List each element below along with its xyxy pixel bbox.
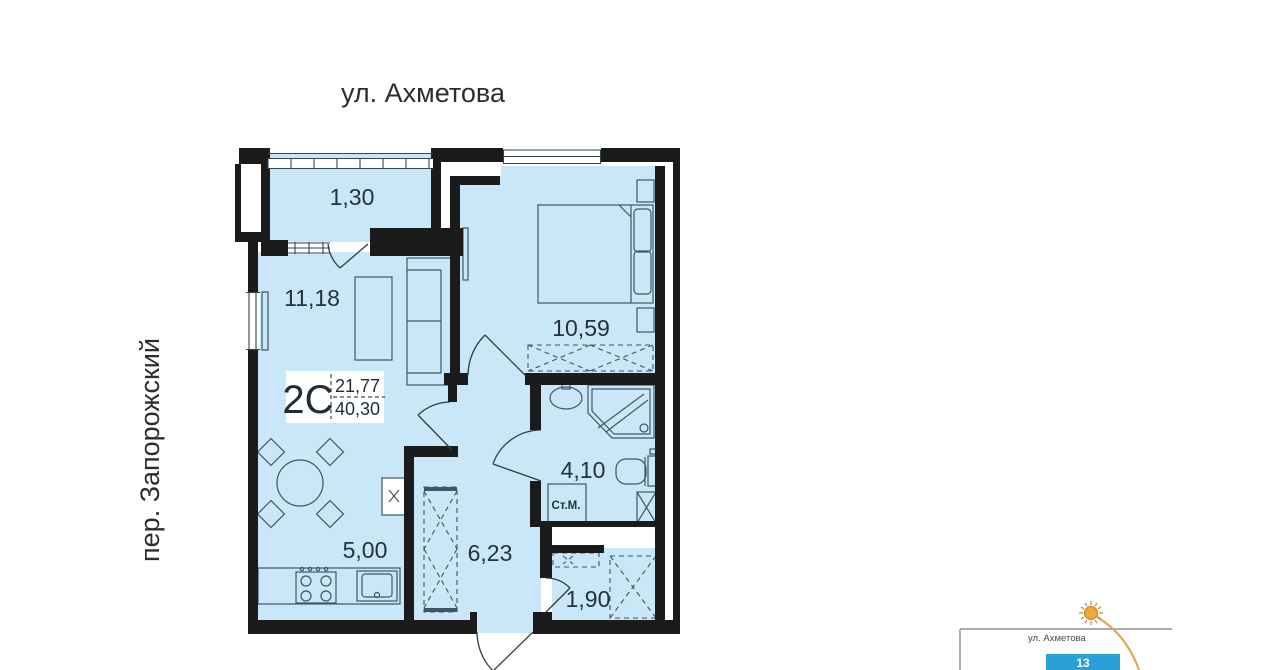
apartment-area-upper: 21,77 (335, 376, 380, 396)
bedroom-window (503, 149, 601, 165)
structural-notch (441, 160, 501, 177)
street-label-left: пер. Запорожский (135, 338, 165, 562)
room-label-bathroom: 4,10 (561, 457, 606, 483)
room-label-balcony: 1,30 (330, 184, 375, 210)
apartment-info-box: 2С 21,77 40,30 (282, 371, 385, 423)
minimap-building-13[interactable]: 13 (1046, 654, 1120, 670)
entrance-gap-floor (477, 620, 533, 633)
washing-machine-label: Ст.М. (552, 500, 581, 512)
minimap-building-number: 13 (1076, 656, 1090, 670)
minimap-street-label: ул. Ахметова (1028, 633, 1086, 644)
room-label-kitchen: 5,00 (343, 537, 388, 563)
balcony-block-window (288, 242, 330, 254)
street-label-top: ул. Ахметова (341, 78, 506, 108)
room-label-hallway: 6,23 (468, 540, 513, 566)
floor-plan-canvas: ул. Ахметова пер. Запорожский (0, 0, 1280, 670)
room-bedroom-floor (460, 166, 655, 373)
room-label-bedroom: 10,59 (552, 315, 610, 341)
minimap: ул. Ахметова 13 (960, 601, 1172, 670)
entrance-door-arc (477, 632, 533, 670)
room-label-living: 11,18 (284, 285, 340, 311)
room-label-storage: 1,90 (566, 586, 611, 612)
living-room-window (246, 292, 260, 350)
apartment-type-label: 2С (282, 378, 333, 422)
sun-icon (1079, 601, 1103, 625)
apartment-area-lower: 40,30 (335, 399, 380, 419)
